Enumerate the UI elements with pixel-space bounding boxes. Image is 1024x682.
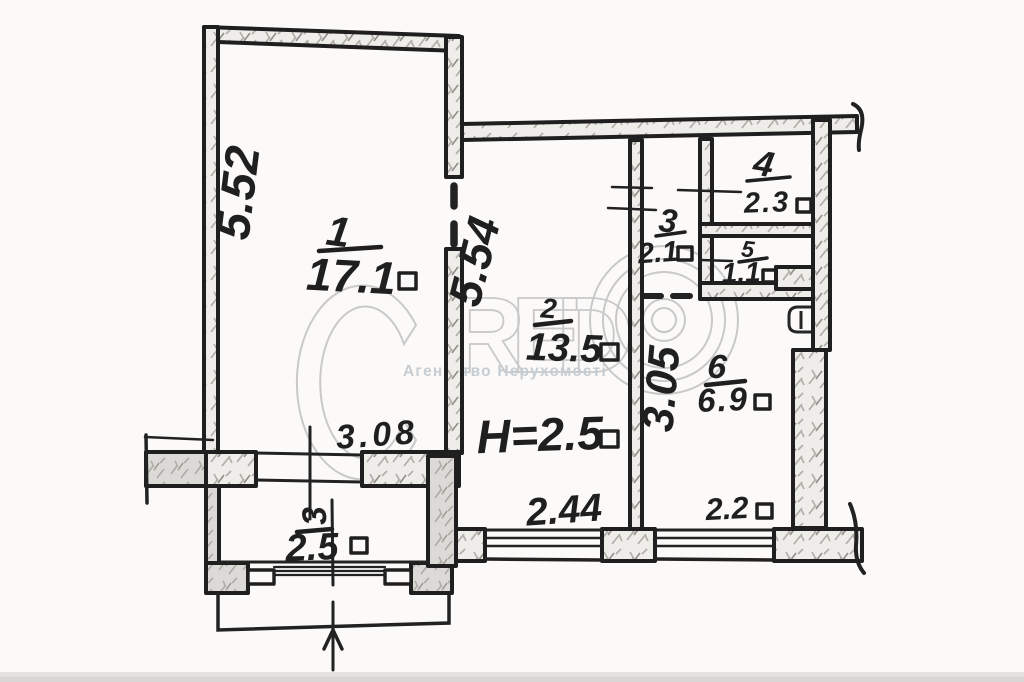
- svg-text:2.1: 2.1: [636, 236, 679, 271]
- svg-text:2.44: 2.44: [524, 486, 604, 534]
- svg-text:17.1: 17.1: [305, 248, 397, 305]
- svg-text:2.2: 2.2: [704, 490, 750, 527]
- svg-text:3.05: 3.05: [633, 344, 689, 434]
- svg-text:H=2.5: H=2.5: [476, 406, 605, 463]
- svg-text:2: 2: [539, 292, 559, 324]
- svg-text:2.3: 2.3: [742, 186, 790, 220]
- svg-text:3.08: 3.08: [335, 413, 420, 457]
- svg-text:13.5: 13.5: [525, 326, 604, 372]
- svg-text:5.52: 5.52: [207, 143, 271, 242]
- svg-text:3: 3: [295, 505, 335, 527]
